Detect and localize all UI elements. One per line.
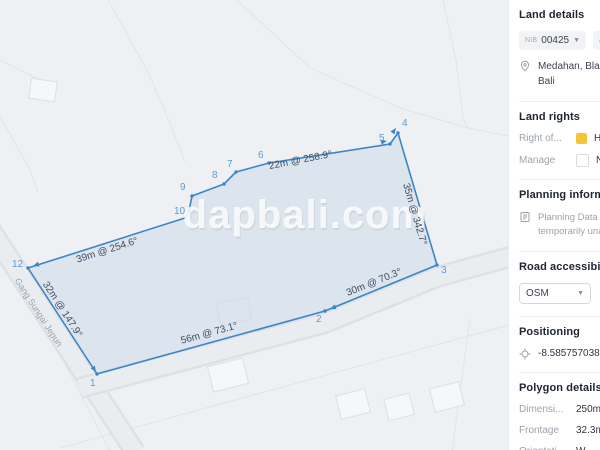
land-details-sidebar: Land details NIB 00425 ▼ Are 2 ▼ xyxy=(508,0,600,450)
road-source-value: OSM xyxy=(526,288,549,299)
polygon-row-value: 250m xyxy=(576,404,600,415)
right-of-value: Hak Milik xyxy=(594,133,600,144)
planning-document-icon xyxy=(519,211,531,223)
vertex-label: 7 xyxy=(227,159,233,170)
watermark: dapbali.com dapbali.com xyxy=(183,193,428,239)
coordinates-value: -8.585757038,... xyxy=(538,348,600,359)
planning-status-text: Planning Data for this temporarily unava… xyxy=(538,211,600,239)
crosshair-icon xyxy=(519,348,531,360)
vertex-label: 10 xyxy=(174,206,186,217)
vertex-label: 1 xyxy=(90,378,96,389)
road-source-select[interactable]: OSM ▼ xyxy=(519,283,591,304)
manage-checkbox[interactable] xyxy=(576,154,589,167)
section-polygon-details: Polygon details Dimensi... 250m Frontage… xyxy=(519,373,600,450)
chevron-down-icon: ▼ xyxy=(577,290,584,297)
section-road-accessibility: Road accessibility OSM ▼ Private xyxy=(519,252,600,317)
section-title: Planning information xyxy=(519,189,600,201)
vertex-label: 6 xyxy=(258,150,264,161)
vertex-label: 8 xyxy=(212,170,218,181)
nib-select[interactable]: NIB 00425 ▼ xyxy=(519,31,586,50)
vertex-label: 5 xyxy=(379,133,385,144)
right-of-label: Right of... xyxy=(519,133,569,144)
nib-prefix-label: NIB xyxy=(525,37,537,44)
polygon-row-value: W xyxy=(576,446,585,450)
location-text: Medahan, Blahbatuh, Bali xyxy=(538,60,600,89)
section-title: Land rights xyxy=(519,111,600,123)
manage-value: No data xyxy=(596,155,600,166)
land-right-color-swatch xyxy=(576,133,587,144)
chevron-down-icon: ▼ xyxy=(573,37,580,44)
section-land-rights: Land rights Right of... Hak Milik Manage… xyxy=(519,102,600,180)
section-title: Road accessibility xyxy=(519,261,600,273)
polygon-row-label: Dimensi... xyxy=(519,404,569,415)
section-title: Polygon details xyxy=(519,382,600,394)
vertex-label: 12 xyxy=(12,259,24,270)
vertex-label: 4 xyxy=(402,118,408,129)
are-select[interactable]: Are 2 ▼ xyxy=(593,31,600,50)
location-pin-icon xyxy=(519,60,531,72)
app-window: dapbali.com dapbali.com Gang Sungai Jepu… xyxy=(0,0,600,450)
vertex-label: 3 xyxy=(441,265,447,276)
polygon-row-label: Orientati... xyxy=(519,446,569,450)
manage-label: Manage xyxy=(519,155,569,166)
polygon-row-value: 32.3m xyxy=(576,425,600,436)
nib-value: 00425 xyxy=(541,35,569,46)
section-planning: Planning information Planning Data for t… xyxy=(519,180,600,252)
section-land-details: Land details NIB 00425 ▼ Are 2 ▼ xyxy=(519,0,600,102)
svg-text:dapbali.com: dapbali.com xyxy=(183,193,427,237)
vertex-label: 2 xyxy=(316,314,322,325)
section-title: Positioning xyxy=(519,326,600,338)
section-positioning: Positioning -8.585757038,... xyxy=(519,317,600,373)
polygon-row-label: Frontage xyxy=(519,425,569,436)
vertex-label: 9 xyxy=(180,182,186,193)
section-title: Land details xyxy=(519,9,600,21)
